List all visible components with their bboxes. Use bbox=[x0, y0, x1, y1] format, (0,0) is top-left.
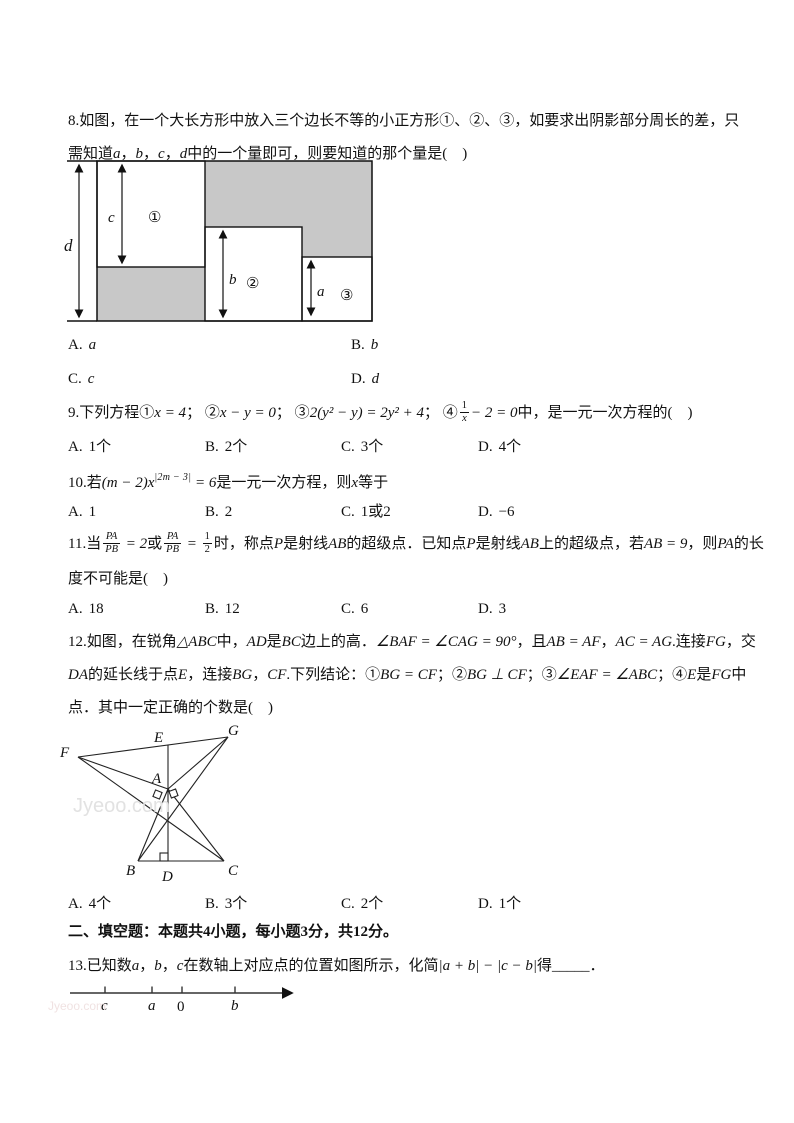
option-letter: C. bbox=[68, 371, 82, 387]
text-segment: ； bbox=[276, 405, 295, 421]
label-B: B bbox=[126, 863, 135, 879]
label-c: c bbox=[108, 210, 115, 226]
q8-figure: d c ① b ② a ③ bbox=[62, 156, 382, 331]
text-segment: 是射线 bbox=[283, 536, 328, 552]
option-c: C.3个 bbox=[341, 436, 383, 458]
option-value: 4个 bbox=[499, 439, 522, 455]
label-zero: 0 bbox=[177, 999, 185, 1015]
option-value: 1或2 bbox=[361, 504, 391, 520]
math-expr: BG = CF bbox=[380, 667, 437, 683]
q8-line1: 8.如图，在一个大长方形中放入三个边长不等的小正方形①、②、③，如要求出阴影部分… bbox=[68, 110, 739, 132]
q12-line2: DA的延长线于点E，连接BG，CF.下列结论：①BG = CF；②BG ⊥ CF… bbox=[68, 664, 746, 686]
text-segment: 中，是一元一次方程的( ) bbox=[518, 405, 693, 421]
text-segment: 是射线 bbox=[476, 536, 521, 552]
text-segment: ，交 bbox=[726, 634, 756, 650]
option-value: b bbox=[371, 337, 379, 353]
q13-number-line: c a 0 b bbox=[62, 975, 312, 1020]
math-var: P bbox=[466, 536, 475, 552]
option-value: 2个 bbox=[361, 896, 384, 912]
option-letter: B. bbox=[205, 601, 219, 617]
option-c: C.1或2 bbox=[341, 501, 391, 523]
square-2 bbox=[205, 227, 302, 321]
option-letter: C. bbox=[341, 439, 355, 455]
option-value: 1个 bbox=[89, 439, 112, 455]
text-segment: ． bbox=[590, 958, 605, 974]
circled-2: ② bbox=[205, 405, 220, 421]
text-segment: 12.如图，在锐角 bbox=[68, 634, 177, 650]
math-expr: (m − 2)x bbox=[102, 475, 155, 491]
option-value: c bbox=[88, 371, 95, 387]
option-letter: D. bbox=[478, 896, 493, 912]
text-segment: 的超级点．已知点 bbox=[346, 536, 466, 552]
text-segment: ； bbox=[437, 667, 452, 683]
q9-line: 9.下列方程①x = 4； ②x − y = 0； ③2(y² − y) = 2… bbox=[68, 401, 693, 426]
fraction-numerator: PA bbox=[165, 531, 180, 543]
option-c: C.c bbox=[68, 368, 94, 390]
option-d: D.3 bbox=[478, 598, 506, 620]
label-a: a bbox=[148, 998, 156, 1014]
right-angle-marker-D bbox=[160, 853, 168, 861]
text-segment: 11.当 bbox=[68, 536, 101, 552]
option-a: A.1个 bbox=[68, 436, 111, 458]
math-expr: x = 4 bbox=[154, 405, 186, 421]
math-var: FG bbox=[711, 667, 731, 683]
option-value: 3 bbox=[499, 601, 507, 617]
math-var: CF bbox=[267, 667, 286, 683]
option-value: 2个 bbox=[225, 439, 248, 455]
option-b: B.3个 bbox=[205, 893, 247, 915]
q13-line: 13.已知数a，b，c在数轴上对应点的位置如图所示，化简|a + b| − |c… bbox=[68, 955, 605, 977]
option-value: 3个 bbox=[225, 896, 248, 912]
option-a: A.a bbox=[68, 334, 96, 356]
text-segment: 10.若 bbox=[68, 475, 102, 491]
text-segment: ； bbox=[424, 405, 443, 421]
text-segment: 中 bbox=[731, 667, 746, 683]
math-expr: AB = AF bbox=[547, 634, 601, 650]
math-var: b bbox=[154, 958, 162, 974]
text-segment: 在数轴上对应点的位置如图所示，化简 bbox=[183, 958, 438, 974]
label-square-1: ① bbox=[148, 210, 161, 226]
segment-BG bbox=[138, 737, 228, 861]
option-value: 3个 bbox=[361, 439, 384, 455]
q11-line1: 11.当PAPB = 2或PAPB = 12时，称点P是射线AB的超级点．已知点… bbox=[68, 532, 764, 557]
option-value: 1个 bbox=[499, 896, 522, 912]
shaded-region-mid-right bbox=[302, 227, 372, 257]
fraction-numerator: 1 bbox=[460, 400, 469, 412]
math-expr: = bbox=[183, 536, 201, 552]
fraction-denominator: PB bbox=[103, 543, 120, 556]
label-A: A bbox=[151, 771, 162, 787]
text-segment: 或 bbox=[147, 536, 162, 552]
q11-line2: 度不可能是( ) bbox=[68, 568, 168, 590]
option-b: B.2 bbox=[205, 501, 232, 523]
math-expr: △ABC bbox=[177, 634, 217, 650]
math-var: AD bbox=[247, 634, 267, 650]
segment-AG bbox=[168, 737, 228, 789]
math-var: FG bbox=[706, 634, 726, 650]
option-a: A.18 bbox=[68, 598, 104, 620]
text-segment: 是 bbox=[696, 667, 711, 683]
label-square-3: ③ bbox=[340, 288, 353, 304]
math-expr: ∠BAF = ∠CAG = 90° bbox=[376, 634, 517, 650]
option-letter: D. bbox=[478, 504, 493, 520]
option-letter: B. bbox=[205, 504, 219, 520]
math-var: BG bbox=[232, 667, 252, 683]
option-value: 4个 bbox=[89, 896, 112, 912]
exam-page: 8.如图，在一个大长方形中放入三个边长不等的小正方形①、②、③，如要求出阴影部分… bbox=[0, 0, 794, 1123]
math-expr: = 6 bbox=[191, 475, 216, 491]
option-letter: D. bbox=[351, 371, 366, 387]
text-segment: 9.下列方程 bbox=[68, 405, 139, 421]
option-letter: D. bbox=[478, 601, 493, 617]
option-value: 1 bbox=[89, 504, 97, 520]
label-C: C bbox=[228, 863, 239, 879]
option-value: 2 bbox=[225, 504, 233, 520]
fraction-numerator: PA bbox=[104, 531, 119, 543]
text-segment: 中， bbox=[217, 634, 247, 650]
text-segment: ； bbox=[657, 667, 672, 683]
text-segment: 边上的高． bbox=[301, 634, 376, 650]
math-exponent: |2m − 3| bbox=[154, 472, 191, 483]
circled-1: ① bbox=[365, 667, 380, 683]
text-segment: 13.已知数 bbox=[68, 958, 132, 974]
text-segment: 的延长线于点 bbox=[88, 667, 178, 683]
text-segment: 是一元一次方程，则 bbox=[216, 475, 351, 491]
option-letter: A. bbox=[68, 896, 83, 912]
square-3 bbox=[302, 257, 372, 321]
label-D: D bbox=[161, 869, 173, 885]
text-segment: ，且 bbox=[516, 634, 546, 650]
label-a: a bbox=[317, 284, 325, 300]
option-letter: B. bbox=[205, 439, 219, 455]
math-expr: = 2 bbox=[122, 536, 147, 552]
label-square-2: ② bbox=[246, 276, 259, 292]
option-letter: A. bbox=[68, 504, 83, 520]
math-var: E bbox=[687, 667, 696, 683]
option-a: A.1 bbox=[68, 501, 96, 523]
fraction-numerator: 1 bbox=[203, 531, 212, 543]
circled-3: ③ bbox=[542, 667, 557, 683]
option-c: C.6 bbox=[341, 598, 368, 620]
math-var: E bbox=[178, 667, 187, 683]
fraction: 1x bbox=[460, 400, 469, 425]
option-letter: C. bbox=[341, 896, 355, 912]
right-angle-marker-BAF bbox=[153, 790, 162, 799]
shaded-region-bottom-left bbox=[97, 267, 205, 321]
math-expr: AB = 9 bbox=[644, 536, 687, 552]
text-segment: .下列结论： bbox=[286, 667, 365, 683]
math-var: AB bbox=[328, 536, 346, 552]
segment-FG bbox=[78, 737, 228, 757]
right-angle-marker-CAG bbox=[169, 789, 178, 798]
option-value: 12 bbox=[225, 601, 240, 617]
q12-line3: 点．其中一定正确的个数是( ) bbox=[68, 697, 273, 719]
text-segment: ，则 bbox=[687, 536, 717, 552]
option-d: D.−6 bbox=[478, 501, 515, 523]
text-segment: ， bbox=[252, 667, 267, 683]
math-var: PA bbox=[717, 536, 733, 552]
text-segment: .连接 bbox=[672, 634, 706, 650]
math-expr: BG ⊥ CF bbox=[467, 667, 527, 683]
text-segment: 时，称点 bbox=[214, 536, 274, 552]
q12-line1: 12.如图，在锐角△ABC中，AD是BC边上的高．∠BAF = ∠CAG = 9… bbox=[68, 631, 756, 653]
math-expr: ∠EAF = ∠ABC bbox=[557, 667, 657, 683]
math-expr: AC = AG bbox=[616, 634, 673, 650]
option-d: D.1个 bbox=[478, 893, 521, 915]
label-b: b bbox=[231, 998, 239, 1014]
math-expr: |a + b| − |c − b| bbox=[438, 958, 537, 974]
circled-1: ① bbox=[139, 405, 154, 421]
label-d: d bbox=[64, 236, 73, 255]
fraction-denominator: 2 bbox=[203, 543, 212, 556]
option-a: A.4个 bbox=[68, 893, 111, 915]
option-letter: B. bbox=[351, 337, 365, 353]
label-c: c bbox=[101, 998, 108, 1014]
text-segment: ， bbox=[162, 958, 177, 974]
option-value: 18 bbox=[89, 601, 104, 617]
label-b: b bbox=[229, 272, 237, 288]
label-F: F bbox=[59, 745, 70, 761]
circled-4: ④ bbox=[443, 405, 458, 421]
option-value: −6 bbox=[499, 504, 515, 520]
fraction: PAPB bbox=[103, 531, 120, 556]
text-segment: ； bbox=[186, 405, 205, 421]
q10-line: 10.若(m − 2)x|2m − 3| = 6是一元一次方程，则x等于 bbox=[68, 467, 388, 494]
option-b: B.12 bbox=[205, 598, 240, 620]
section-2-header: 二、填空题：本题共4小题，每小题3分，共12分。 bbox=[68, 921, 398, 943]
q12-figure: F G E A B D C bbox=[58, 723, 253, 888]
circled-4: ④ bbox=[672, 667, 687, 683]
option-value: d bbox=[372, 371, 380, 387]
segment-AC bbox=[168, 789, 224, 861]
fraction: 12 bbox=[203, 531, 212, 556]
option-value: a bbox=[89, 337, 97, 353]
fraction-denominator: PB bbox=[164, 543, 181, 556]
option-b: B.2个 bbox=[205, 436, 247, 458]
text-segment: ，连接 bbox=[187, 667, 232, 683]
option-b: B.b bbox=[351, 334, 378, 356]
math-var: AB bbox=[521, 536, 539, 552]
option-letter: D. bbox=[478, 439, 493, 455]
option-value: 6 bbox=[361, 601, 369, 617]
label-G: G bbox=[228, 723, 239, 739]
fraction: PAPB bbox=[164, 531, 181, 556]
option-letter: C. bbox=[341, 504, 355, 520]
math-var: BC bbox=[282, 634, 301, 650]
text-segment: 是 bbox=[267, 634, 282, 650]
option-letter: A. bbox=[68, 337, 83, 353]
math-var: DA bbox=[68, 667, 88, 683]
math-var: P bbox=[274, 536, 283, 552]
option-letter: C. bbox=[341, 601, 355, 617]
text-segment: 上的超级点，若 bbox=[539, 536, 644, 552]
circled-3: ③ bbox=[295, 405, 310, 421]
answer-blank: _____ bbox=[552, 958, 590, 974]
option-letter: A. bbox=[68, 439, 83, 455]
fraction-denominator: x bbox=[460, 412, 469, 425]
option-letter: B. bbox=[205, 896, 219, 912]
text-segment: 的长 bbox=[734, 536, 764, 552]
text-segment: 得 bbox=[537, 958, 552, 974]
text-segment: ； bbox=[527, 667, 542, 683]
text-segment: 等于 bbox=[358, 475, 388, 491]
option-letter: A. bbox=[68, 601, 83, 617]
math-expr: 2(y² − y) = 2y² + 4 bbox=[310, 405, 424, 421]
circled-2: ② bbox=[452, 667, 467, 683]
math-expr: − 2 = 0 bbox=[471, 405, 518, 421]
option-d: D.4个 bbox=[478, 436, 521, 458]
label-E: E bbox=[153, 730, 163, 746]
text-segment: ， bbox=[601, 634, 616, 650]
option-d: D.d bbox=[351, 368, 379, 390]
option-c: C.2个 bbox=[341, 893, 383, 915]
shaded-region-top-right bbox=[205, 161, 372, 227]
math-expr: x − y = 0 bbox=[220, 405, 276, 421]
text-segment: ， bbox=[139, 958, 154, 974]
